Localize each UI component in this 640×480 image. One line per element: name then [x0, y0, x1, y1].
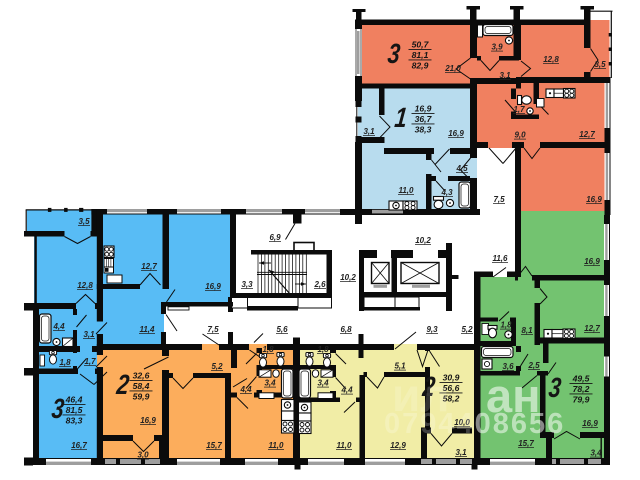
svg-text:11,0: 11,0: [337, 441, 353, 450]
svg-text:15,7: 15,7: [206, 441, 222, 450]
svg-text:81,1: 81,1: [412, 50, 429, 60]
svg-text:12,8: 12,8: [77, 281, 93, 290]
svg-text:59,9: 59,9: [133, 392, 150, 402]
svg-text:3,0: 3,0: [137, 451, 149, 460]
svg-text:2,6: 2,6: [313, 280, 326, 289]
svg-text:5,2: 5,2: [211, 362, 223, 371]
svg-text:7,5: 7,5: [493, 195, 505, 204]
svg-text:3,1: 3,1: [455, 448, 467, 457]
svg-text:12,7: 12,7: [579, 130, 595, 139]
svg-text:38,3: 38,3: [415, 125, 432, 135]
svg-text:1,7: 1,7: [513, 105, 525, 114]
svg-text:3,4: 3,4: [590, 449, 602, 458]
svg-text:15,7: 15,7: [518, 439, 534, 448]
svg-text:12,8: 12,8: [543, 55, 559, 64]
svg-text:78,2: 78,2: [573, 384, 590, 394]
svg-text:3,5: 3,5: [594, 60, 606, 69]
svg-text:36,7: 36,7: [415, 114, 433, 124]
svg-text:3,1: 3,1: [363, 127, 375, 136]
svg-text:11,4: 11,4: [140, 325, 156, 334]
svg-text:10,2: 10,2: [340, 273, 356, 282]
svg-text:9,3: 9,3: [426, 325, 438, 334]
svg-text:3,1: 3,1: [499, 71, 511, 80]
svg-text:4,4: 4,4: [340, 386, 353, 395]
svg-text:1,7: 1,7: [84, 357, 96, 366]
svg-text:4,4: 4,4: [239, 385, 252, 394]
svg-text:16,9: 16,9: [448, 129, 464, 138]
svg-text:16,9: 16,9: [584, 257, 600, 266]
svg-text:5,2: 5,2: [461, 325, 473, 334]
svg-text:11,0: 11,0: [399, 186, 415, 195]
svg-text:12,7: 12,7: [584, 324, 600, 333]
svg-text:7,5: 7,5: [207, 325, 219, 334]
svg-text:16,7: 16,7: [71, 441, 87, 450]
svg-text:5,6: 5,6: [276, 325, 288, 334]
svg-text:1,8: 1,8: [59, 358, 71, 367]
svg-text:16,9: 16,9: [140, 416, 156, 425]
svg-text:81,5: 81,5: [66, 405, 83, 415]
svg-text:3,3: 3,3: [241, 280, 253, 289]
svg-text:4,4: 4,4: [52, 322, 65, 331]
svg-text:11,6: 11,6: [493, 254, 509, 263]
svg-text:12,7: 12,7: [141, 262, 157, 271]
svg-text:3,4: 3,4: [264, 379, 276, 388]
svg-text:8,1: 8,1: [521, 326, 533, 335]
svg-text:1,8: 1,8: [500, 321, 512, 330]
svg-text:3,4: 3,4: [317, 379, 329, 388]
svg-text:21,0: 21,0: [444, 64, 461, 73]
svg-text:16,9: 16,9: [415, 104, 432, 114]
svg-text:4,5: 4,5: [455, 164, 468, 173]
svg-text:83,3: 83,3: [66, 416, 83, 426]
svg-text:16,9: 16,9: [586, 195, 602, 204]
svg-text:79,9: 79,9: [573, 395, 590, 405]
svg-text:50,7: 50,7: [412, 40, 430, 50]
svg-text:11,0: 11,0: [269, 441, 285, 450]
svg-text:32,6: 32,6: [133, 371, 150, 381]
svg-text:3,9: 3,9: [491, 43, 503, 52]
svg-text:1,8: 1,8: [317, 345, 329, 354]
svg-text:12,9: 12,9: [390, 441, 406, 450]
svg-text:82,9: 82,9: [412, 61, 429, 71]
svg-text:3,1: 3,1: [83, 330, 95, 339]
svg-text:46,4: 46,4: [65, 395, 83, 405]
svg-text:10,2: 10,2: [415, 236, 431, 245]
svg-text:49,5: 49,5: [572, 374, 590, 384]
svg-text:9,0: 9,0: [514, 131, 526, 140]
svg-text:3,5: 3,5: [78, 217, 90, 226]
svg-text:1,8: 1,8: [262, 345, 274, 354]
svg-text:4,3: 4,3: [440, 188, 453, 197]
svg-text:6,8: 6,8: [340, 325, 352, 334]
svg-text:16,9: 16,9: [582, 419, 598, 428]
svg-text:6,9: 6,9: [269, 233, 281, 242]
svg-text:58,4: 58,4: [133, 381, 150, 391]
svg-text:16,9: 16,9: [205, 282, 221, 291]
